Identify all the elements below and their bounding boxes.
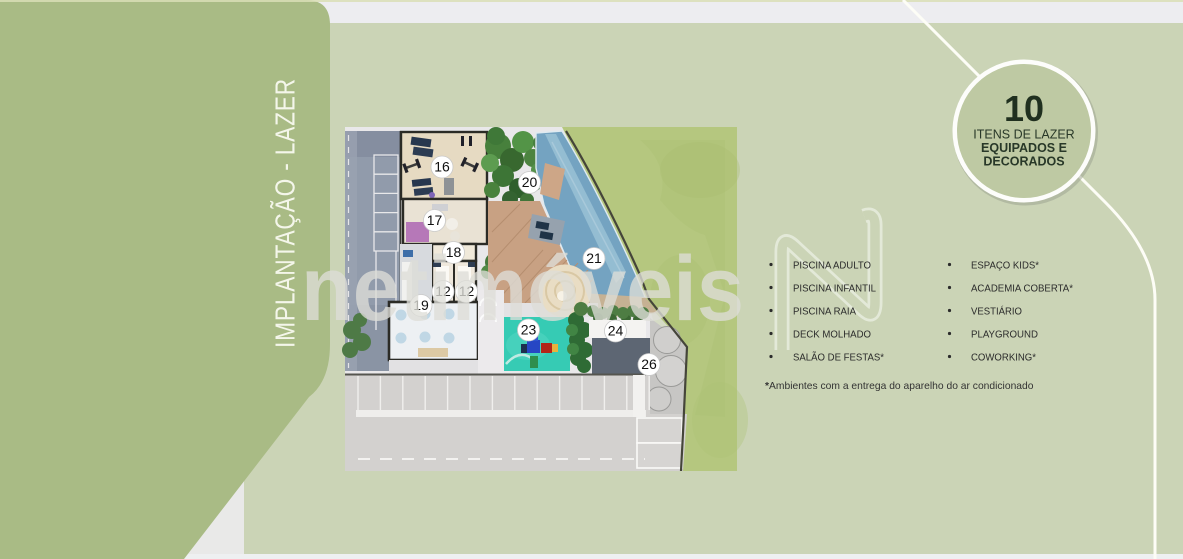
svg-text:SALÃO DE FESTAS*: SALÃO DE FESTAS* (793, 351, 884, 364)
svg-text:10: 10 (1004, 88, 1044, 129)
svg-text:PISCINA ADULTO: PISCINA ADULTO (793, 260, 871, 272)
svg-text:PISCINA RAIA: PISCINA RAIA (793, 306, 856, 318)
svg-text:COWORKING*: COWORKING* (971, 352, 1036, 364)
svg-text:ITENS DE LAZER: ITENS DE LAZER (973, 128, 1074, 142)
svg-text:26: 26 (641, 356, 657, 372)
svg-text:17: 17 (427, 212, 443, 228)
svg-text:ESPAÇO KIDS*: ESPAÇO KIDS* (971, 260, 1039, 272)
svg-text:16: 16 (434, 159, 450, 175)
svg-text:netimóveis: netimóveis (301, 238, 744, 340)
svg-text:VESTIÁRIO: VESTIÁRIO (971, 305, 1022, 318)
svg-text:IMPLANTAÇÃO - LAZER: IMPLANTAÇÃO - LAZER (270, 78, 301, 348)
svg-text:PLAYGROUND: PLAYGROUND (971, 329, 1038, 341)
svg-text:PISCINA INFANTIL: PISCINA INFANTIL (793, 283, 876, 295)
svg-text:20: 20 (522, 174, 538, 190)
svg-text:DECORADOS: DECORADOS (983, 155, 1064, 169)
svg-text:EQUIPADOS E: EQUIPADOS E (981, 141, 1067, 155)
svg-text:DECK MOLHADO: DECK MOLHADO (793, 329, 871, 341)
svg-text:ACADEMIA COBERTA*: ACADEMIA COBERTA* (971, 283, 1073, 295)
svg-text:*Ambientes com a entrega do ap: *Ambientes com a entrega do aparelho do … (765, 381, 1034, 392)
